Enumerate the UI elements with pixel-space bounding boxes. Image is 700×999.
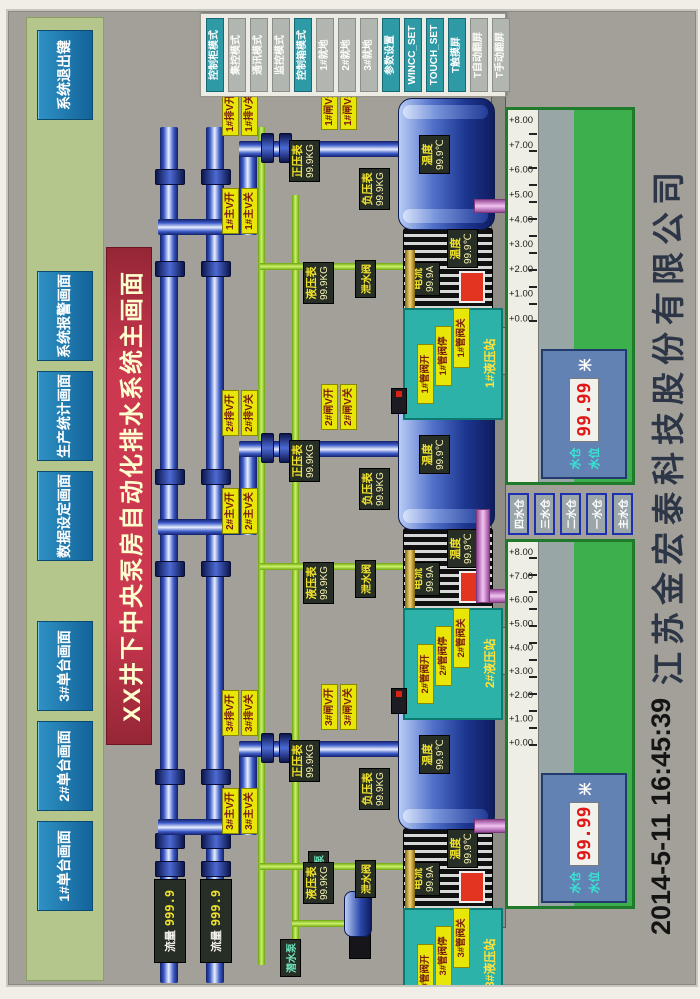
- company-name: 江苏金宏泰科技股份有限公司: [642, 165, 690, 685]
- gauge-label: 负压表: [362, 772, 375, 806]
- gauge-label: 液压表: [306, 266, 319, 300]
- mode-button[interactable]: 控制柜模式: [206, 18, 224, 92]
- level-scale-labels: +0.00+1.00+2.00+3.00+4.00+5.00+6.00+7.00…: [509, 548, 537, 748]
- riser-collar-icon: [261, 433, 274, 463]
- toolbar-button[interactable]: 3#单台画面: [37, 621, 93, 711]
- vacuum-gauge: 负压表 99.9KG: [359, 168, 390, 210]
- pump-temp-box: 温度 99.9℃: [419, 735, 450, 774]
- sump-selector-button[interactable]: 三水仓: [534, 493, 555, 535]
- toolbar-button[interactable]: 2#单台画面: [37, 721, 93, 811]
- pipe-valve-open-button[interactable]: 2#管阀开: [417, 644, 434, 704]
- hydraulic-station-label: 3#液压站: [481, 912, 498, 987]
- mode-button[interactable]: T手动翻屏: [492, 18, 510, 92]
- gauge-label: 正压表: [292, 744, 305, 778]
- hmi-screen: 1#单台画面2#单台画面3#单台画面数据设定画面生产统计画面系统报警画面系统退出…: [6, 9, 698, 987]
- pipe-flange-icon: [155, 561, 185, 577]
- level-label-line2: 水位: [586, 448, 602, 470]
- pipe-flange-icon: [155, 769, 185, 785]
- pipe-flange-icon: [155, 469, 185, 485]
- mode-button[interactable]: WINCC_SET: [404, 18, 422, 92]
- scale-tick-label: +3.00: [509, 240, 537, 250]
- suction-pipe-pump2-stub: [476, 509, 490, 603]
- main-valve-open-button[interactable]: 1#主V开: [222, 188, 239, 234]
- mode-button[interactable]: 控制箱模式: [294, 18, 312, 92]
- toolbar-button[interactable]: 数据设定画面: [37, 471, 93, 561]
- motor-temp-value: 99.9℃: [463, 533, 475, 564]
- level-label-line1: 水仓: [567, 448, 583, 470]
- riser-collar-icon: [261, 133, 274, 163]
- drain-valve-label: 泄水阀: [355, 560, 376, 598]
- level-display-labels: 水仓 水位: [567, 872, 602, 894]
- main-valve-close-button[interactable]: 2#主V关: [241, 488, 258, 534]
- positive-pressure-gauge: 正压表 99.9KG: [289, 740, 320, 782]
- pump-temp-value: 99.9℃: [435, 439, 447, 470]
- mode-button[interactable]: 3#就地: [360, 18, 378, 92]
- mode-button[interactable]: TOUCH_SET: [426, 18, 444, 92]
- scale-tick-label: +7.00: [509, 141, 537, 151]
- pipe-flange-icon: [201, 561, 231, 577]
- scale-tick-label: +4.00: [509, 643, 537, 653]
- gauge-value: 99.9KG: [305, 744, 317, 778]
- gauge-value: 99.9KG: [305, 144, 317, 178]
- pipe-flange-icon: [201, 861, 231, 877]
- gauge-label: 正压表: [292, 444, 305, 478]
- scale-tick-label: +7.00: [509, 572, 537, 582]
- pipe-valve-stop-button[interactable]: 3#管阀停: [435, 926, 452, 986]
- pipe-valve-open-button[interactable]: 3#管阀开: [417, 944, 434, 987]
- sump-selector-button[interactable]: 一水仓: [586, 493, 607, 535]
- gauge-label: 正压表: [292, 144, 305, 178]
- gauge-label: 液压表: [306, 566, 319, 600]
- main-valve-close-button[interactable]: 3#主V关: [241, 788, 258, 834]
- mode-button[interactable]: 2#就地: [338, 18, 356, 92]
- level-scale-strip: +0.00+1.00+2.00+3.00+4.00+5.00+6.00+7.00…: [508, 110, 539, 482]
- gauge-label: 液压表: [306, 866, 319, 900]
- datetime-display: 2014-5-11 16:45:39: [646, 698, 677, 935]
- level-scale-labels: +0.00+1.00+2.00+3.00+4.00+5.00+6.00+7.00…: [509, 116, 537, 324]
- scale-tick-label: +0.00: [509, 315, 537, 325]
- hmi-landscape-stage: 1#单台画面2#单台画面3#单台画面数据设定画面生产统计画面系统报警画面系统退出…: [0, 0, 700, 999]
- pipe-valve-stop-button[interactable]: 1#管阀停: [435, 326, 452, 386]
- gauge-value: 99.9KG: [375, 772, 387, 806]
- motor-temp-box: 温度 99.9℃: [447, 229, 478, 268]
- motor-temp-label: 温度: [450, 533, 463, 564]
- main-valve-open-button[interactable]: 3#主V开: [222, 788, 239, 834]
- scale-tick-label: +2.00: [509, 265, 537, 275]
- toolbar-button[interactable]: 系统退出键: [37, 30, 93, 120]
- gauge-value: 99.9KG: [319, 566, 331, 600]
- pump-temp-label: 温度: [422, 739, 435, 770]
- toolbar-button[interactable]: 生产统计画面: [37, 371, 93, 461]
- scale-tick-label: +1.00: [509, 715, 537, 725]
- hydraulic-station-panel: 2#管阀开 2#管阀停 2#管阀关 2#液压站: [403, 608, 503, 720]
- pipe-flange-icon: [155, 261, 185, 277]
- top-toolbar: 1#单台画面2#单台画面3#单台画面数据设定画面生产统计画面系统报警画面系统退出…: [26, 17, 104, 981]
- pump-temp-value: 99.9℃: [435, 739, 447, 770]
- hydraulic-gauge: 液压表 99.9KG: [303, 862, 334, 904]
- pipe-flange-icon: [201, 261, 231, 277]
- scale-tick-label: +0.00: [509, 739, 537, 749]
- sump-selector-button[interactable]: 四水仓: [508, 493, 529, 535]
- gauge-value: 99.9KG: [375, 472, 387, 506]
- motor-temp-label: 温度: [450, 233, 463, 264]
- motor-temp-value: 99.9℃: [463, 233, 475, 264]
- main-valve-open-button[interactable]: 2#主V开: [222, 488, 239, 534]
- level-display-labels: 水仓 水位: [567, 448, 602, 470]
- drain-valve-label: 泄水阀: [355, 260, 376, 298]
- gauge-value: 99.9KG: [319, 266, 331, 300]
- scale-tick-label: +6.00: [509, 596, 537, 606]
- sump-level-display: 水仓 水位 99.99 米: [541, 773, 627, 903]
- sump-level-display: 水仓 水位 99.99 米: [541, 349, 627, 479]
- scale-tick-label: +3.00: [509, 667, 537, 677]
- pipe-flange-icon: [155, 169, 185, 185]
- pump-temp-label: 温度: [422, 439, 435, 470]
- toolbar-button[interactable]: 系统报警画面: [37, 271, 93, 361]
- motor-indicator-icon: [459, 871, 485, 903]
- sump-selector-stack: 四水仓三水仓二水仓一水仓主水仓: [508, 491, 638, 535]
- mode-button[interactable]: 参数设置: [382, 18, 400, 92]
- gauge-label: 负压表: [362, 172, 375, 206]
- hydraulic-station-label: 2#液压站: [481, 612, 498, 688]
- hydraulic-pump-icon: [391, 688, 407, 714]
- riser-collar-icon: [261, 733, 274, 763]
- scale-tick-label: +8.00: [509, 548, 537, 558]
- scale-tick-label: +8.00: [509, 116, 537, 126]
- hydraulic-gauge: 液压表 99.9KG: [303, 562, 334, 604]
- vacuum-gauge: 负压表 99.9KG: [359, 468, 390, 510]
- scale-tick-label: +4.00: [509, 215, 537, 225]
- pump-temp-label: 温度: [422, 139, 435, 170]
- pipe-flange-icon: [155, 861, 185, 877]
- mode-button[interactable]: 通讯模式: [250, 18, 268, 92]
- pipe-valve-close-button[interactable]: 3#管阀关: [453, 908, 470, 968]
- mode-button[interactable]: 1#就地: [316, 18, 334, 92]
- level-label-line2: 水位: [586, 872, 602, 894]
- motor-current-value: 99.9A: [425, 866, 437, 892]
- drain-valve-label: 泄水阀: [355, 860, 376, 898]
- motor-temp-value: 99.9℃: [463, 833, 475, 864]
- gauge-label: 负压表: [362, 472, 375, 506]
- pipe-flange-icon: [201, 769, 231, 785]
- positive-pressure-gauge: 正压表 99.9KG: [289, 440, 320, 482]
- motor-indicator-icon: [459, 271, 485, 303]
- pump-temp-value: 99.9℃: [435, 139, 447, 170]
- sump-selector-button[interactable]: 主水仓: [612, 493, 633, 535]
- hydraulic-pump-icon: [391, 388, 407, 414]
- motor-temp-label: 温度: [450, 833, 463, 864]
- hydraulic-station-panel: 1#管阀开 1#管阀停 1#管阀关 1#液压站: [403, 308, 503, 420]
- scale-tick-label: +2.00: [509, 691, 537, 701]
- scale-tick-label: +5.00: [509, 190, 537, 200]
- gauge-value: 99.9KG: [319, 866, 331, 900]
- pipe-flange-icon: [201, 469, 231, 485]
- pipe-valve-stop-button[interactable]: 2#管阀停: [435, 626, 452, 686]
- level-unit: 米: [575, 783, 594, 796]
- level-led-value: 99.99: [569, 802, 599, 866]
- pump-temp-box: 温度 99.9℃: [419, 435, 450, 474]
- toolbar-button[interactable]: 1#单台画面: [37, 821, 93, 911]
- mode-button[interactable]: 集控模式: [228, 18, 246, 92]
- motor-current-value: 99.9A: [425, 266, 437, 292]
- motor-temp-box: 温度 99.9℃: [447, 829, 478, 868]
- rotated-screenshot-viewport: 1#单台画面2#单台画面3#单台画面数据设定画面生产统计画面系统报警画面系统退出…: [0, 0, 700, 999]
- mode-button[interactable]: T触摸屏: [448, 18, 466, 92]
- scale-tick-label: +6.00: [509, 166, 537, 176]
- scale-tick-label: +1.00: [509, 290, 537, 300]
- pipe-valve-open-button[interactable]: 1#管阀开: [417, 344, 434, 404]
- positive-pressure-gauge: 正压表 99.9KG: [289, 140, 320, 182]
- vacuum-gauge: 负压表 99.9KG: [359, 768, 390, 810]
- level-label-line1: 水仓: [567, 872, 583, 894]
- motor-current-value: 99.9A: [425, 566, 437, 592]
- hydraulic-station-label: 1#液压站: [481, 312, 498, 388]
- gauge-value: 99.9KG: [375, 172, 387, 206]
- mode-button[interactable]: T自动翻屏: [470, 18, 488, 92]
- pipe-valve-close-button[interactable]: 1#管阀关: [453, 308, 470, 368]
- pump-temp-box: 温度 99.9℃: [419, 135, 450, 174]
- sump-selector-button[interactable]: 二水仓: [560, 493, 581, 535]
- scale-tick-label: +5.00: [509, 619, 537, 629]
- gauge-value: 99.9KG: [305, 444, 317, 478]
- level-scale-strip: +0.00+1.00+2.00+3.00+4.00+5.00+6.00+7.00…: [508, 542, 539, 906]
- pipe-flange-icon: [201, 169, 231, 185]
- pipe-valve-close-button[interactable]: 2#管阀关: [453, 608, 470, 668]
- main-valve-close-button[interactable]: 1#主V关: [241, 188, 258, 234]
- level-led-value: 99.99: [569, 378, 599, 442]
- hydraulic-station-panel: 3#管阀开 3#管阀停 3#管阀关 3#液压站: [403, 908, 503, 987]
- mode-button[interactable]: 监控模式: [272, 18, 290, 92]
- level-unit: 米: [575, 359, 594, 372]
- control-mode-panel: 控制柜模式集控模式通讯模式监控模式控制箱模式1#就地2#就地3#就地参数设置WI…: [200, 13, 506, 97]
- motor-temp-box: 温度 99.9℃: [447, 529, 478, 568]
- hydraulic-gauge: 液压表 99.9KG: [303, 262, 334, 304]
